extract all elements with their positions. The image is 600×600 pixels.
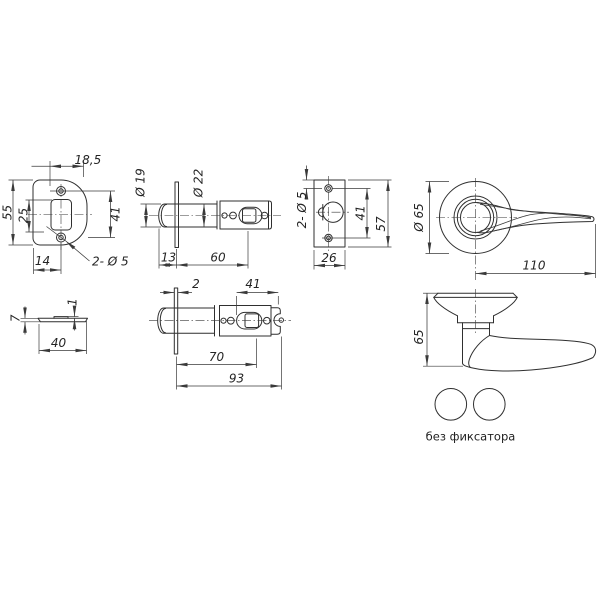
plate-outline xyxy=(38,318,88,322)
lever-crease xyxy=(486,217,591,233)
dim-head-length: 13 xyxy=(161,251,176,265)
rose-bevel xyxy=(434,293,438,297)
dim-height: 57 xyxy=(374,216,388,232)
variant-circle xyxy=(474,389,506,421)
dim-total-length: 93 xyxy=(229,372,244,386)
dim-length: 40 xyxy=(51,336,67,350)
dim-lever-length: 110 xyxy=(523,259,546,273)
variant-circle xyxy=(435,389,467,421)
dim-tail-length: 41 xyxy=(245,277,260,291)
tail-pin xyxy=(279,318,283,322)
leader-line xyxy=(66,241,90,261)
dim-height: 55 xyxy=(1,205,15,220)
holes-note: 2- Ø 5 xyxy=(295,192,309,229)
faceplate-edge xyxy=(175,182,179,248)
handle-top-view: Ø 65 110 xyxy=(412,178,596,281)
rose-cone xyxy=(434,297,458,315)
rose-cone xyxy=(494,297,518,315)
dim-thickness: 7 xyxy=(9,314,23,322)
dim-bolt-dia: Ø 19 xyxy=(134,168,148,198)
latch-side-view: 2 41 70 93 xyxy=(149,277,291,390)
strike-plate-narrow-view: 2- Ø 5 41 57 26 xyxy=(295,166,392,270)
rose-bevel xyxy=(513,293,517,297)
plate-side-view: 7 1 40 xyxy=(9,298,88,354)
latch-top-view: Ø 19 Ø 22 13 60 xyxy=(134,168,282,268)
drawing-sheet: 18,5 55 25 41 14 2- Ø 5 xyxy=(0,0,600,600)
technical-drawing: 18,5 55 25 41 14 2- Ø 5 xyxy=(0,0,600,600)
dim-rose-dia: Ø 65 xyxy=(412,203,426,233)
holes-note: 2- Ø 5 xyxy=(92,255,129,269)
dim-body-dia: Ø 22 xyxy=(192,169,206,199)
dim-tab-height: 1 xyxy=(66,298,80,306)
variant-caption: без фиксатора xyxy=(426,430,516,444)
dim-cutout: 25 xyxy=(17,208,31,223)
dim-width: 26 xyxy=(321,251,337,265)
dim-hole-spacing: 41 xyxy=(109,206,123,221)
dim-hole-spacing: 41 xyxy=(354,205,368,220)
strike-plate-front-view: 18,5 55 25 41 14 2- Ø 5 xyxy=(1,153,129,274)
dim-spindle-distance: 70 xyxy=(209,350,225,364)
dim-height: 65 xyxy=(412,329,426,344)
dim-backset: 60 xyxy=(210,251,226,265)
variant-indicator: без фиксатора xyxy=(426,389,516,444)
handle-side-view: 65 xyxy=(412,289,596,371)
grip-butt-arc xyxy=(469,336,490,368)
dim-faceplate: 2 xyxy=(192,277,200,291)
body-outline xyxy=(220,201,272,229)
dim-width-top: 18,5 xyxy=(75,153,102,167)
dim-hole-offset: 14 xyxy=(35,254,50,268)
